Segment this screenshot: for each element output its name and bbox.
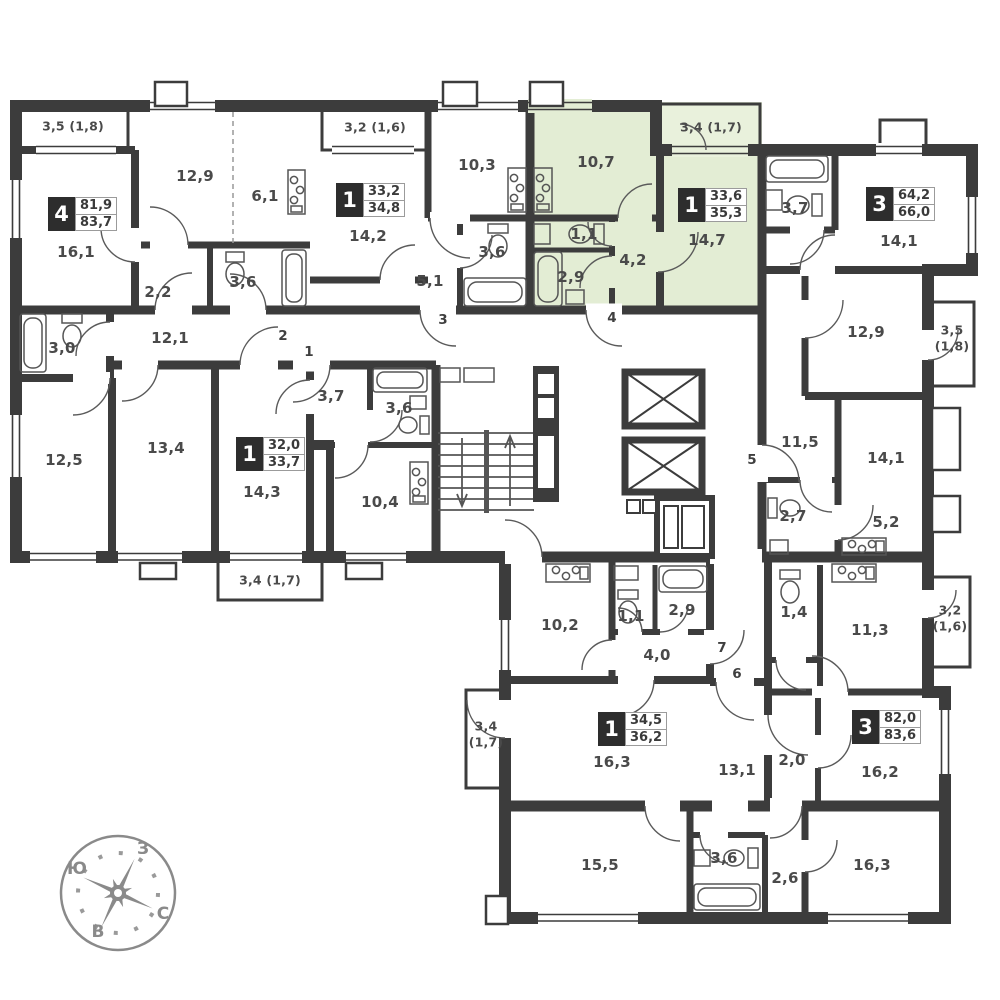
floor-plan-drawing [0,0,1000,1000]
door-arcs [73,124,958,872]
stairs [438,368,534,513]
compass-rose [61,836,175,950]
selected-apartment-highlight[interactable] [530,101,764,314]
balconies [20,104,974,788]
floor-plan: 3,5 (1,8)12,96,116,12,23,63,012,112,513,… [0,0,1000,1000]
elevator-shafts [625,372,702,492]
